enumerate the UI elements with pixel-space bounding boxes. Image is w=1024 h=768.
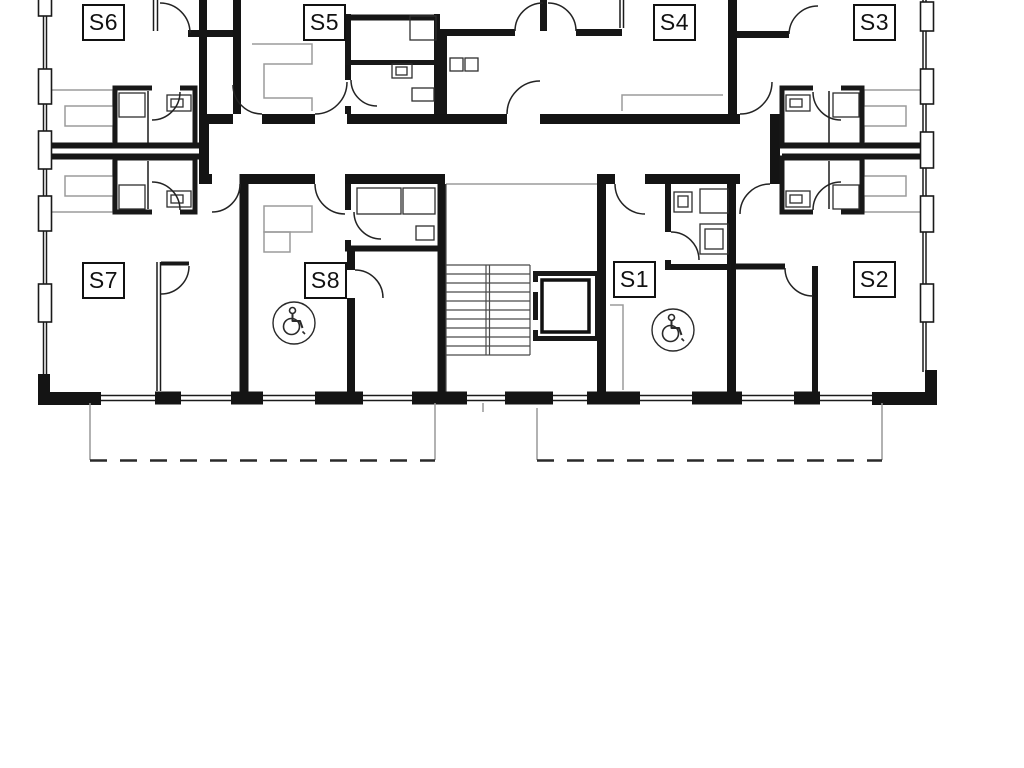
doors-layer [152, 3, 841, 298]
floor-plan-canvas: S6 S5 S4 S3 S7 S8 S1 S2 [0, 0, 1024, 768]
room-label-s3: S3 [853, 4, 896, 41]
bathroom-blocks [115, 84, 862, 215]
stairs [446, 184, 530, 393]
wheelchair-icon-s1 [652, 309, 694, 351]
room-label-s8: S8 [304, 262, 347, 299]
bathroom-fixtures [119, 16, 859, 254]
room-label-s5: S5 [303, 4, 346, 41]
elevator [533, 271, 600, 341]
floor-plan-drawing [0, 0, 1024, 768]
balcony-outlines [90, 403, 882, 461]
room-label-s6: S6 [82, 4, 125, 41]
room-label-s1: S1 [613, 261, 656, 298]
room-label-s7: S7 [82, 262, 125, 299]
room-label-s4: S4 [653, 4, 696, 41]
exterior-walls [44, 0, 927, 401]
room-label-s2: S2 [853, 261, 896, 298]
wheelchair-icon-s8 [273, 302, 315, 344]
